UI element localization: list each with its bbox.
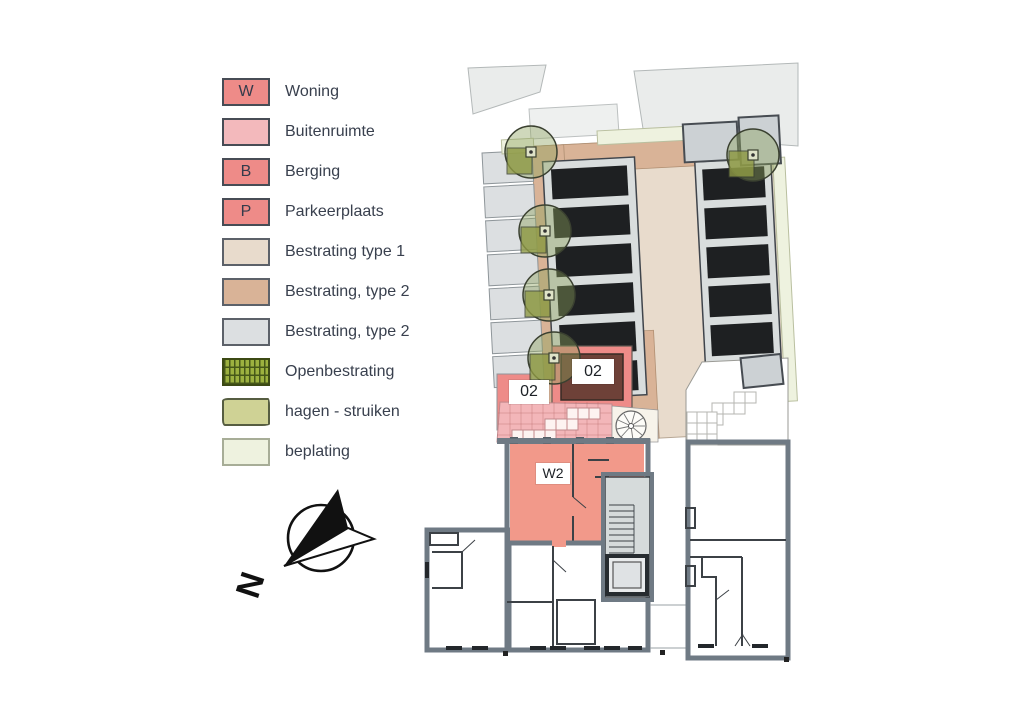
swatch-letter: P — [241, 203, 252, 221]
legend-swatch-bestrating-1 — [222, 238, 270, 266]
right-terrace-area — [686, 354, 788, 445]
lower-partitions — [507, 546, 595, 648]
building-floorplan — [425, 441, 789, 662]
spiral-stair — [612, 406, 658, 442]
legend-item: beplating — [222, 438, 270, 466]
buitenruimte-terrace — [497, 402, 612, 442]
passage — [650, 605, 686, 648]
right-building — [686, 442, 788, 658]
legend-swatch-bestrating-2-tan — [222, 278, 270, 306]
paving-box-bottom-right — [741, 354, 784, 388]
legend-item: Bestrating, type 2 — [222, 318, 270, 346]
main-block — [507, 441, 652, 650]
left-wing — [425, 530, 509, 650]
legend-item: W Woning — [222, 78, 270, 106]
swatch-letter: B — [241, 163, 252, 181]
label-storage-unit: 02 — [572, 359, 614, 384]
legend-item: Bestrating type 1 — [222, 238, 270, 266]
legend-item: B Berging — [222, 158, 270, 186]
legend-swatch-bestrating-2-gray — [222, 318, 270, 346]
legend-item: Openbestrating — [222, 358, 270, 386]
legend-swatch-hagen-struiken — [222, 398, 270, 426]
tree — [519, 205, 571, 257]
legend-swatch-berging: B — [222, 158, 270, 186]
legend-item: hagen - struiken — [222, 398, 270, 426]
legend-swatch-openbestrating — [222, 358, 270, 386]
legend-item: Buitenruimte — [222, 118, 270, 146]
legend-item: P Parkeerplaats — [222, 198, 270, 226]
tree — [523, 269, 575, 321]
legend-swatch-woning: W — [222, 78, 270, 106]
site-plan — [408, 28, 800, 670]
site-plan-page: W Woning Buitenruimte B Berging P Parkee… — [0, 0, 1024, 724]
swatch-letter: W — [238, 83, 253, 101]
tree — [505, 126, 557, 178]
legend-swatch-buitenruimte — [222, 118, 270, 146]
legend-item: Bestrating, type 2 — [222, 278, 270, 306]
label-side-unit: 02 — [509, 380, 549, 404]
tree — [727, 129, 779, 181]
label-apartment-w2: W2 — [536, 463, 570, 484]
stair-core — [603, 474, 652, 600]
legend-swatch-beplating — [222, 438, 270, 466]
legend-swatch-parkeerplaats: P — [222, 198, 270, 226]
